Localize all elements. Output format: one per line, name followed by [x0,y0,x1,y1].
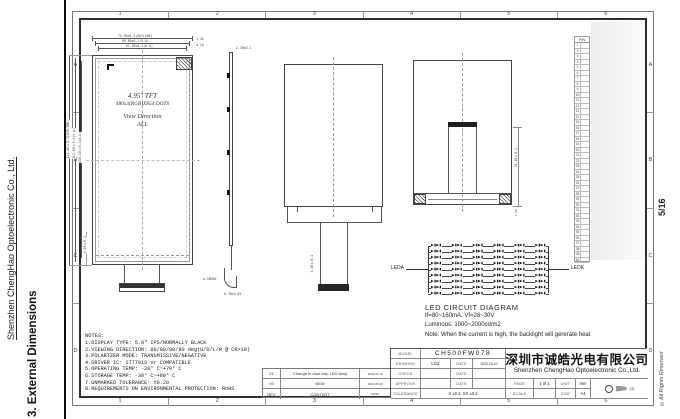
projection-circle-icon [605,385,613,393]
drawing-value: LGZ [421,359,451,369]
dim-folded-bottom: 1.00 [514,209,518,216]
led-spec-current: If=80~160mA, Vf=28~30V [425,313,494,319]
pin-row: 40 [575,258,589,264]
dim-tail-width: 3.10±0.1 [310,255,314,272]
check-value [421,369,451,379]
pin-name [581,159,589,164]
approve-date [473,379,506,389]
fpc-neck [124,265,160,283]
date-label: DATE [451,359,473,369]
dim-small-1: 1.45 [196,37,204,41]
dim-va-height: 117.80±0.2(V.A) [72,128,76,159]
revision-row: REVCONTENTDATA [263,389,390,399]
led-diode-pair-icon: ▶▮▶▮ [494,250,505,254]
pin-name [581,208,589,213]
pin-name [581,93,589,98]
page-number: 5/16 [657,168,667,216]
revision-rev: V0 [263,379,281,388]
model-value: CH500FW078 [435,350,491,357]
dim-line [98,48,187,49]
zone-column-label: 3 [266,398,363,406]
side-view-fpc-line [231,246,232,270]
dim-fpc-thickness: 0.30±0.05 [224,292,241,296]
led-diode-pair-icon: ▶▮▶▮ [514,262,525,266]
led-diode-pair-icon: ▶▮▶▮ [452,286,463,290]
fpc-connector-contacts [120,284,164,288]
back-view-notch [297,207,298,212]
projection-cell: (3) [591,379,648,399]
dim-tick [192,36,193,41]
note-item: 2.VIEWING DIRECTION: 80/80/80/80 deg(U/D… [85,347,317,354]
dim-thickness: 2.30±0.1 [236,46,251,50]
dim-tick [92,36,93,41]
side-view-tab [227,73,230,78]
led-diode-pair-icon: ▶▮▶▮ [514,244,525,248]
projection-note: (3) [630,386,635,391]
led-diode-pair-icon: ▶▮▶▮ [452,274,463,278]
model-label: MODEL [391,349,421,359]
pin-name [581,219,589,224]
led-diode-pair-icon: ▶▮▶▮ [473,292,484,296]
pin-name [581,137,589,142]
border-row-strip-right: ABCD [647,18,654,398]
led-diode-pair-icon: ▶▮▶▮ [494,286,505,290]
pin-table-rows: 1234567891011121314151617181920212223242… [575,43,589,263]
sidebar-divider [64,0,66,419]
revision-row: V1Change to dual chip LED lamp2022.10.10 [263,369,390,379]
led-diode-pair-icon: ▶▮▶▮ [431,244,442,248]
pin-name [581,131,589,136]
dim-small-2: 4.16 [196,43,204,47]
zone-column-label: 3 [266,11,363,18]
led-diode-pair-icon: ▶▮▶▮ [431,280,442,284]
sidebar-section-title: 3. External Dimensions [27,245,39,417]
led-diode-pair-icon: ▶▮▶▮ [473,280,484,284]
zone-column-label: 2 [169,398,266,406]
size-value: A4 [576,389,591,399]
border-column-strip-top: 123456 [72,11,654,18]
led-diode-pair-icon: ▶▮▶▮ [431,256,442,260]
drawing-date: 2022.10.10 [473,359,506,369]
side-view-body [229,52,233,246]
scale-label: SCALE [506,389,534,399]
pin-name [581,164,589,169]
led-diode-pair-icon: ▶▮▶▮ [535,244,546,248]
revision-date: 2022.10.10 [360,369,390,378]
led-diode-pair-icon: ▶▮▶▮ [431,274,442,278]
check-label: CHECK [391,369,421,379]
led-diode-pair-icon: ▶▮▶▮ [452,280,463,284]
back-view-notch [372,207,373,212]
dim-tick [513,127,522,128]
led-diode-pair-icon: ▶▮▶▮ [514,286,525,290]
led-diode-pair-icon: ▶▮▶▮ [494,280,505,284]
led-diode-pair-icon: ▶▮▶▮ [535,268,546,272]
folded-view-fpc [448,127,477,193]
front-view-driver-band [96,255,189,256]
front-view-corner-mark [107,64,114,70]
side-view-tab [227,150,230,155]
date-label: DATE [451,379,473,389]
led-diode-pair-icon: ▶▮▶▮ [452,250,463,254]
led-diode-pair-icon: ▶▮▶▮ [431,292,442,296]
company-name-en: Shenzhen ChengHao Optoelectronic Co.,Ltd… [514,367,640,375]
zone-column-label: 1 [72,11,169,18]
zone-column-label: 6 [558,11,654,18]
zone-row-label: B [647,113,654,208]
led-diode-pair-icon: ▶▮▶▮ [494,262,505,266]
pin-name [581,142,589,147]
led-diode-pair-icon: ▶▮▶▮ [473,244,484,248]
model-value-cell: CH500FW078 [421,349,506,359]
dim-aa-height: 110.10±0.2(A.A) [78,132,82,163]
pin-name [581,247,589,252]
title-block: MODEL CH500FW078 DRAWING LGZ DATE 2022.1… [390,348,647,398]
led-grid: ▶▮▶▮▶▮▶▮▶▮▶▮▶▮▶▮▶▮▶▮▶▮▶▮▶▮▶▮▶▮▶▮▶▮▶▮▶▮▶▮… [428,243,549,297]
pin-name [581,230,589,235]
pin-name [581,115,589,120]
check-date [473,369,506,379]
pin-name [581,175,589,180]
dim-aa-width: 61.90±0.2(A.A) [126,44,153,48]
led-diode-pair-icon: ▶▮▶▮ [494,274,505,278]
front-view-centerline-v [142,50,143,270]
date-label: DATE [451,369,473,379]
led-diode-pair-icon: ▶▮▶▮ [535,250,546,254]
approve-label: APPROVE [391,379,421,389]
led-diode-pair-icon: ▶▮▶▮ [452,292,463,296]
led-spec-luminous: Luminous: 1000~2000cd/m2 [425,322,501,328]
led-diode-pair-icon: ▶▮▶▮ [535,274,546,278]
revision-table: V1Change to dual chip LED lamp2022.10.10… [262,368,390,398]
revision-rev: V1 [263,369,281,378]
pin-name [581,192,589,197]
pin-name [581,49,589,54]
pin-name [581,258,589,263]
company-name-cn: 深圳市诚皓光电有限公司 [506,353,648,367]
dim-outline-height: 121.40±0.3(OUTLINE) [66,120,70,159]
led-diode-pair-icon: ▶▮▶▮ [514,292,525,296]
dim-tick [189,41,190,46]
led-diode-pair-icon: ▶▮▶▮ [514,250,525,254]
led-diode-pair-icon: ▶▮▶▮ [514,274,525,278]
dim-folded-height: 78.10±0.2 [514,148,518,167]
revision-content: Change to dual chip LED lamp [281,369,360,378]
led-diagram-title: LED CIRCUIT DIAGRAM [425,303,519,312]
led-diode-pair-icon: ▶▮▶▮ [494,256,505,260]
dim-bottom-ledge: 9.50±0.5 [83,236,87,253]
back-view-connector [318,284,349,291]
pin-name [581,203,589,208]
led-cathode-label: LEDK [571,265,584,271]
pin-name [581,104,589,109]
dim-tick [95,41,96,46]
dim-tick [513,206,522,207]
page-value: 1 of 1 [534,379,556,389]
dim-ext [69,265,92,266]
folded-view-pad-left [414,194,426,204]
zone-column-label: 5 [461,11,558,18]
copyright-text: ©All Rights Reserved [659,318,665,406]
projection-trapezoid-icon [616,386,627,392]
front-view-centerline-h [86,160,200,161]
led-diode-pair-icon: ▶▮▶▮ [452,262,463,266]
revision-content: NEW [281,379,360,388]
sidebar-company-text: Shenzhen ChengHao Optoelectronic Co., Lt… [6,140,16,340]
led-diode-pair-icon: ▶▮▶▮ [473,286,484,290]
pin-name [581,153,589,158]
revision-date: DATA [360,389,390,399]
back-view-flange [287,207,382,223]
front-view-connector-hatch [176,57,192,70]
border-column-strip-bottom: 123456 [72,398,654,406]
panel-size-text: 4.95" TFT [92,92,193,100]
led-row: ▶▮▶▮▶▮▶▮▶▮▶▮▶▮▶▮▶▮▶▮▶▮▶▮ [428,291,549,297]
led-lead-right [549,269,569,270]
pin-name [581,65,589,70]
approve-value [421,379,451,389]
pin-name [581,54,589,59]
folded-view-flange-line2 [428,199,497,200]
dim-outline-width: 72.90±0.3(OUTLINE) [118,34,153,38]
revision-rows: V1Change to dual chip LED lamp2022.10.10… [263,369,390,399]
pin-name [581,214,589,219]
pin-name [581,43,589,48]
zone-column-label: 1 [72,398,169,406]
drawing-label: DRAWING [391,359,421,369]
led-diode-pair-icon: ▶▮▶▮ [494,244,505,248]
tolerance-value: X ±0.3, XX ±0.2 [421,389,506,399]
view-direction-label: View Direction [92,113,193,120]
zone-row-label: D [72,304,79,398]
led-diode-pair-icon: ▶▮▶▮ [535,286,546,290]
unit-label: UNIT [556,379,576,389]
note-item: 1.DISPLAY TYPE: 5.0" IPS/NORMALLY BLACK [85,340,317,347]
dim-hook-radius: 0.50MAX [203,277,216,281]
dim-tick [186,46,187,51]
led-diode-pair-icon: ▶▮▶▮ [452,268,463,272]
pin-name [581,76,589,81]
led-diode-pair-icon: ▶▮▶▮ [473,256,484,260]
dim-va-width: 68.80±0.2(V.A) [122,39,149,43]
side-view-tab [227,190,230,195]
unit-value: mm [576,379,591,389]
pin-name [581,252,589,257]
pin-name [581,120,589,125]
zone-column-label: 4 [364,11,461,18]
led-diode-pair-icon: ▶▮▶▮ [535,292,546,296]
revision-row: V0NEW2022.08.20 [263,379,390,389]
company-cell: 深圳市诚皓光电有限公司 Shenzhen ChengHao Optoelectr… [506,349,648,379]
revision-date: 2022.08.20 [360,379,390,388]
pin-name [581,236,589,241]
pin-name [581,126,589,131]
scale-value [534,389,556,399]
side-view-tab [227,107,230,112]
pin-name [581,186,589,191]
zone-column-label: 4 [364,398,461,406]
pin-name [581,82,589,87]
led-diode-pair-icon: ▶▮▶▮ [535,256,546,260]
led-diode-pair-icon: ▶▮▶▮ [473,274,484,278]
dim-line [75,58,76,262]
led-diode-pair-icon: ▶▮▶▮ [452,244,463,248]
pin-name [581,109,589,114]
size-label: SIZE [556,389,576,399]
back-view-fpc-tail [320,223,348,285]
led-note: Note: When the current is high, the back… [425,332,590,338]
pin-name [581,98,589,103]
panel-resolution-text: 480x3(RGB)X854 DOTS [92,101,193,107]
led-diode-pair-icon: ▶▮▶▮ [535,262,546,266]
view-direction-value: ALL [92,121,193,128]
note-item: 3.POLARIZER MODE: TRANSMISSIVE/NEGATIVE [85,353,317,360]
revision-rev: REV [263,389,281,399]
led-diode-pair-icon: ▶▮▶▮ [494,268,505,272]
folded-view-flange-line [414,193,511,194]
pin-name [581,181,589,186]
pin-name [581,60,589,65]
led-diode-pair-icon: ▶▮▶▮ [431,250,442,254]
led-diode-pair-icon: ▶▮▶▮ [431,262,442,266]
zone-row-label: C [647,209,654,304]
zone-column-label: 5 [461,398,558,406]
note-item: 4.DRIVER IC: ST7701S or COMPATIBLE [85,360,317,367]
zone-row-label: A [647,18,654,113]
led-diode-pair-icon: ▶▮▶▮ [452,256,463,260]
page-label: PAGE [506,379,534,389]
pin-name [581,225,589,230]
folded-view-pad-right [499,194,511,204]
side-view-fpc-end [236,276,237,288]
dim-ext [69,55,92,56]
led-diode-pair-icon: ▶▮▶▮ [431,286,442,290]
pin-name [581,241,589,246]
led-diode-pair-icon: ▶▮▶▮ [431,268,442,272]
led-lead-left [406,269,428,270]
pin-name [581,71,589,76]
notes-title: NOTES: [85,333,317,340]
pin-table: P/N 123456789101112131415161718192021222… [574,36,590,262]
led-diode-pair-icon: ▶▮▶▮ [514,268,525,272]
led-diode-pair-icon: ▶▮▶▮ [473,268,484,272]
tolerance-label: TOLERANCE [391,389,421,399]
dim-line [518,127,519,207]
led-diode-pair-icon: ▶▮▶▮ [473,250,484,254]
pin-name [581,170,589,175]
pin-name [581,87,589,92]
zone-row-label: D [647,304,654,398]
dim-line [69,55,70,265]
pin-name [581,197,589,202]
back-view-centerline [333,57,334,217]
led-diode-pair-icon: ▶▮▶▮ [514,280,525,284]
led-diode-pair-icon: ▶▮▶▮ [494,292,505,296]
led-diode-pair-icon: ▶▮▶▮ [473,262,484,266]
revision-content: CONTENT [281,389,360,399]
led-diode-pair-icon: ▶▮▶▮ [535,280,546,284]
led-diode-pair-icon: ▶▮▶▮ [514,256,525,260]
dim-tick [98,46,99,51]
zone-column-label: 6 [558,398,654,406]
zone-column-label: 2 [169,11,266,18]
pin-name [581,148,589,153]
led-anode-label: LEDA [384,265,404,271]
